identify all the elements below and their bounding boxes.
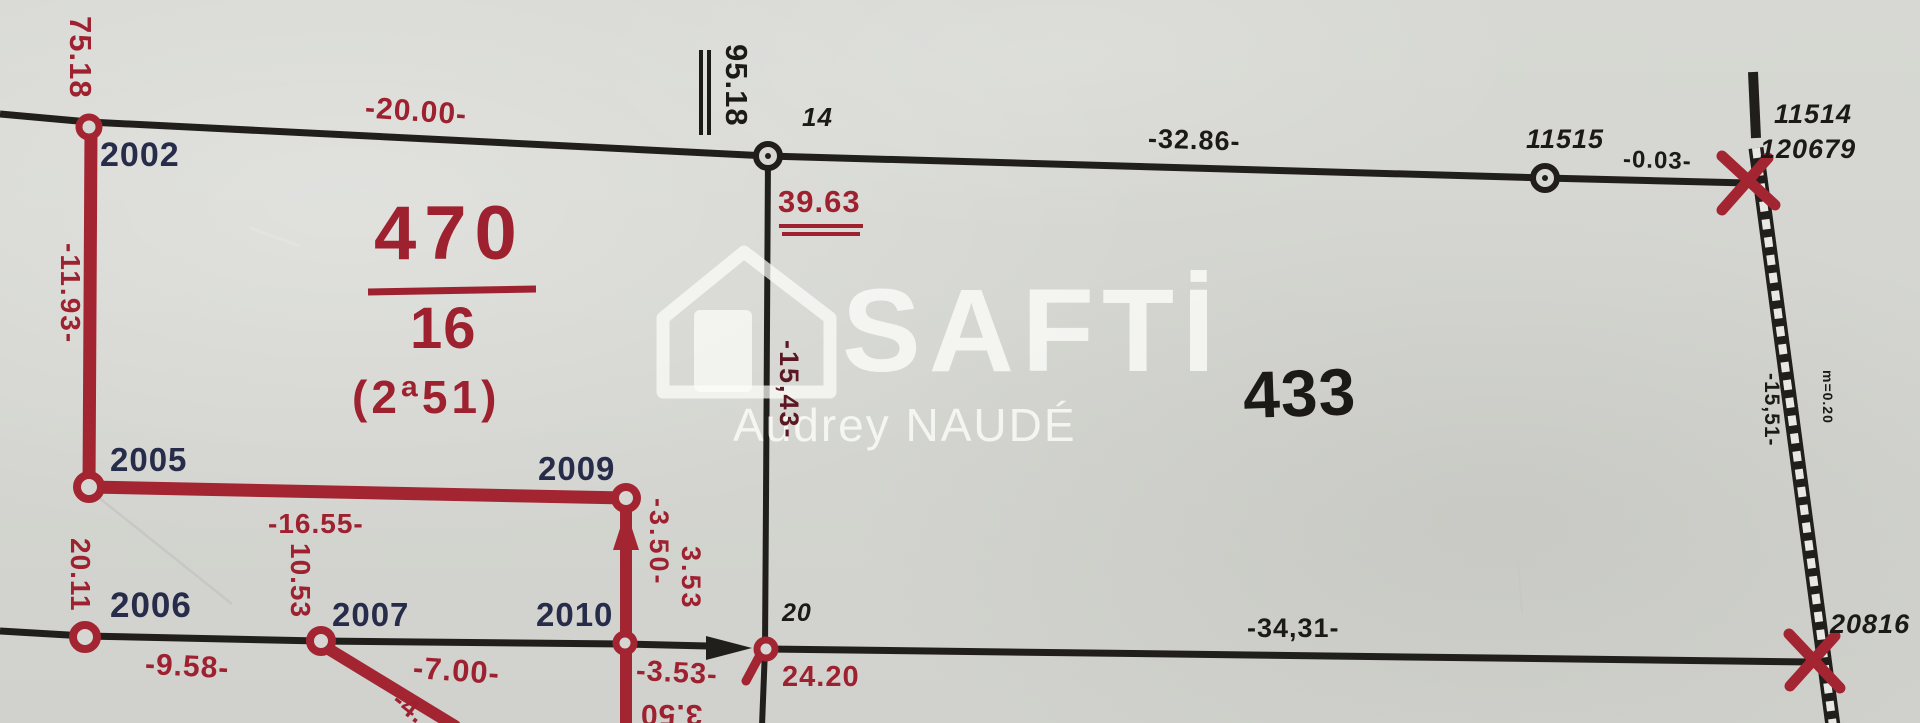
cadastral-survey-sketch: SAFTİ Audrey NAUDÉ 75.18 -11.93- -20.00-…	[0, 0, 1920, 723]
point-label-2009: 2009	[538, 452, 615, 485]
underline	[699, 50, 703, 135]
point-label-120679: 120679	[1760, 136, 1856, 163]
measurement-11-93: -11.93-	[56, 243, 84, 344]
parcel-area: (2ª51)	[352, 374, 500, 420]
measurement-7-00: -7.00-	[412, 652, 501, 689]
measurement-95-18: 95.18	[721, 44, 752, 127]
measurement-0-03: -0.03-	[1623, 148, 1692, 174]
measurement-3-50-flipped: 3.50	[640, 699, 702, 723]
point-label-20816: 20816	[1830, 611, 1910, 638]
measurement-10-53: 10.53	[286, 543, 314, 618]
point-label-11515: 11515	[1526, 126, 1604, 153]
measurement-39-63: 39.63	[778, 186, 861, 217]
measurement-24-20: 24.20	[782, 663, 860, 692]
measurement-15-43: -15,43-	[775, 340, 802, 440]
measurement-3-50-stub: -3.50-	[645, 498, 672, 587]
parcel-number-433: 433	[1242, 358, 1357, 428]
house-door-icon	[694, 310, 752, 392]
parcel-number-470: 470	[374, 196, 525, 272]
underline	[779, 224, 863, 228]
measurement-20-00: -20.00-	[364, 93, 468, 130]
point-label-14: 14	[802, 104, 833, 130]
measurement-3-53: -3.53-	[635, 657, 718, 690]
point-label-2006: 2006	[110, 588, 192, 623]
measurement-16-55: -16.55-	[268, 510, 364, 538]
underline	[782, 232, 860, 236]
parcel-index-16: 16	[410, 300, 477, 358]
point-label-2007: 2007	[332, 598, 409, 631]
point-label-2002: 2002	[100, 138, 180, 172]
measurement-34-31: -34,31-	[1247, 615, 1340, 642]
measurement-32-86: -32.86-	[1148, 125, 1241, 155]
measurement-m-0-20: m=0.20	[1821, 370, 1835, 424]
measurement-15-51: -15,51-	[1761, 373, 1782, 447]
measurement-75-18: 75.18	[65, 16, 96, 99]
measurement-3-53-stub: 3.53	[677, 546, 704, 611]
measurement-9-58: -9.58-	[144, 650, 230, 684]
point-label-11514: 11514	[1774, 101, 1852, 128]
underline	[707, 50, 711, 135]
watermark-brand: SAFTİ	[842, 272, 1223, 390]
point-label-2005: 2005	[110, 443, 187, 476]
point-label-20: 20	[782, 601, 812, 626]
measurement-20-11: 20.11	[66, 538, 94, 612]
point-label-2010: 2010	[536, 598, 613, 631]
